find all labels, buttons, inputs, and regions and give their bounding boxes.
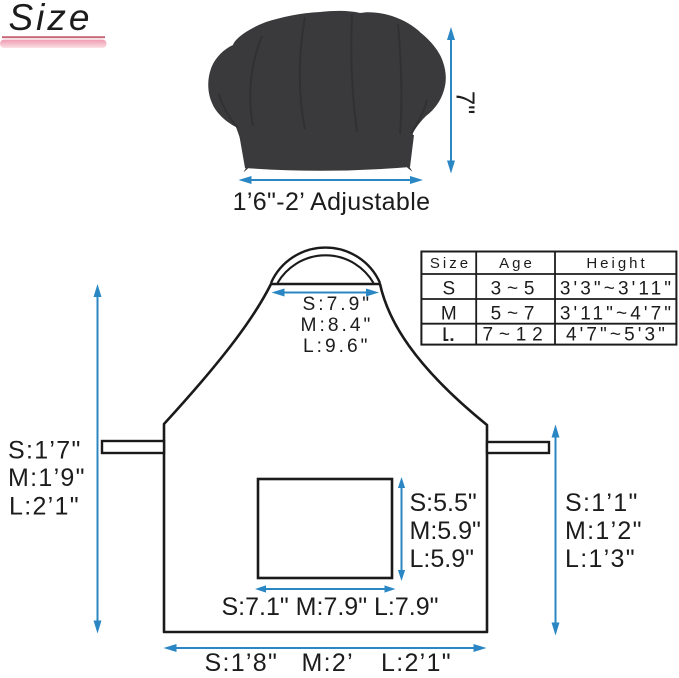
svg-text:S: S — [442, 279, 455, 300]
svg-text:L:9.6": L:9.6" — [303, 336, 371, 357]
svg-text:4'7"~5'3": 4'7"~5'3" — [566, 325, 668, 346]
svg-text:L:1’3": L:1’3" — [565, 545, 636, 573]
svg-text:7": 7" — [451, 91, 479, 114]
svg-text:S:5.5": S:5.5" — [410, 489, 477, 517]
svg-text:Size: Size — [9, 0, 93, 38]
svg-text:3'3"~3'11": 3'3"~3'11" — [560, 279, 674, 300]
svg-text:Age: Age — [499, 255, 535, 272]
svg-text:Size: Size — [430, 255, 471, 272]
svg-text:M: M — [441, 304, 457, 325]
svg-text:M:1’9": M:1’9" — [8, 464, 86, 492]
svg-text:M:5.9": M:5.9" — [410, 517, 481, 545]
svg-text:L:2’1": L:2’1" — [381, 649, 452, 677]
svg-text:S:1’1": S:1’1" — [565, 489, 639, 517]
svg-text:L:2’1": L:2’1" — [9, 492, 80, 520]
svg-text:S:1’7": S:1’7" — [8, 437, 82, 465]
svg-text:Height: Height — [586, 255, 647, 272]
svg-text:M:8.4": M:8.4" — [301, 315, 374, 336]
svg-text:1’6"-2’ Adjustable: 1’6"-2’ Adjustable — [233, 188, 431, 216]
svg-text:S:7.9": S:7.9" — [303, 294, 373, 315]
svg-text:M:2’: M:2’ — [302, 649, 354, 677]
svg-text:S:7.1" M:7.9" L:7.9": S:7.1" M:7.9" L:7.9" — [221, 593, 438, 621]
svg-text:M:1’2": M:1’2" — [565, 517, 643, 545]
svg-text:S:1’8": S:1’8" — [205, 649, 279, 677]
svg-text:L:5.9": L:5.9" — [410, 545, 474, 573]
svg-text:3~5: 3~5 — [491, 279, 541, 300]
svg-text:5~7: 5~7 — [491, 304, 541, 325]
svg-text:3'11"~4'7": 3'11"~4'7" — [560, 304, 674, 325]
svg-text:7~12: 7~12 — [483, 325, 549, 346]
